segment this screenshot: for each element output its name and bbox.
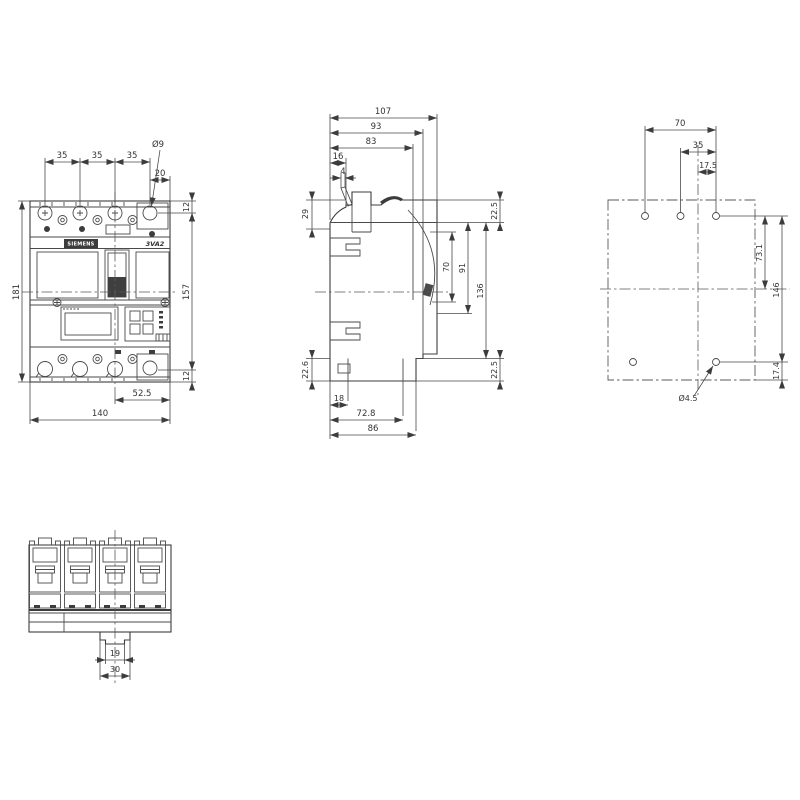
dome-cap [381, 198, 402, 203]
dim-bottom-left-226: 22.6 [301, 361, 310, 379]
drill-dia-leader [694, 366, 713, 396]
brand-label: SIEMENS [67, 242, 94, 248]
bottom-view-outline [29, 545, 171, 632]
lower-terminal-step [330, 322, 360, 340]
dim-depth-83: 83 [366, 137, 377, 147]
dim-trip-91: 91 [458, 263, 467, 273]
toggle-side [341, 187, 352, 206]
vent-slots-bottom [40, 378, 124, 381]
dim-pole-pitch-2: 35 [92, 151, 103, 161]
breaker-side-outline [330, 192, 437, 381]
dim-hole-bottom-offset: 12 [182, 371, 191, 381]
dim-bottom-right-225: 22.5 [490, 361, 499, 379]
cover-panel-right [136, 252, 169, 298]
bottom-terminal-screws [36, 350, 168, 380]
dim-depth-93: 93 [371, 122, 382, 132]
dim-height: 181 [12, 284, 22, 300]
dim-foot-728: 72.8 [357, 409, 376, 419]
cover-panel-left [37, 252, 98, 298]
toggle-handle [108, 277, 126, 297]
dim-toggle-4: 4 [340, 167, 345, 177]
top-terminal-screws [38, 203, 168, 237]
dim-drill-rows-146: 146 [772, 282, 781, 297]
trip-unit-dials [130, 311, 170, 341]
dim-tab-30: 30 [110, 665, 120, 674]
mounting-pad-bottom [137, 354, 168, 380]
dim-width: 140 [92, 409, 108, 419]
foot-lines [348, 359, 403, 382]
dim-top-right-225: 22.5 [490, 202, 499, 220]
dim-slot-19: 19 [110, 649, 120, 658]
side-view [315, 187, 448, 381]
dim-hole-top-offset: 12 [182, 202, 191, 212]
vent-slots-top [40, 202, 124, 206]
dim-top-29: 29 [301, 209, 310, 219]
dim-foot-86: 86 [368, 424, 379, 434]
side-view-dimensions: 107 93 83 16 4 29 70 91 136 22.5 22.5 [301, 107, 504, 439]
front-view-dimensions: 35 35 35 20 Ø9 12 157 12 181 52.5 140 [12, 139, 196, 424]
dim-drill-bottom-174: 17.4 [772, 362, 781, 380]
dim-drill-half-175: 17.5 [699, 161, 717, 170]
escutcheon-side [352, 205, 371, 232]
mounting-plate-outline [608, 200, 755, 380]
upper-terminal-step [330, 238, 360, 256]
mounting-hole-bottom [143, 361, 157, 375]
dim-mid-136: 136 [476, 283, 485, 298]
accessory-latch [423, 283, 434, 297]
dim-depth-total: 107 [375, 107, 391, 117]
dim-drill-pitch-35: 35 [693, 141, 704, 151]
drilling-dimensions: 70 35 17.5 73.1 146 17.4 Ø4.5 [645, 119, 788, 403]
dim-drill-span-70: 70 [675, 119, 686, 129]
dim-drill-row-731: 73.1 [755, 244, 764, 262]
dim-foot-18: 18 [334, 394, 344, 403]
mounting-hole-top [143, 206, 157, 220]
dim-hole-diameter: Ø9 [152, 139, 164, 150]
bottom-view: 19 30 [29, 530, 171, 686]
dim-pole-pitch-3: 35 [127, 151, 138, 161]
dimension-drawing-page: SIEMENS 3VA2 [0, 0, 800, 800]
drilling-pattern-view: 70 35 17.5 73.1 146 17.4 Ø4.5 [600, 119, 790, 403]
dim-front-16: 16 [333, 152, 344, 162]
dim-handle-to-edge: 52.5 [133, 389, 152, 399]
dim-pole-pitch-1: 35 [57, 151, 68, 161]
pole-modules [30, 538, 166, 608]
technical-drawing: SIEMENS 3VA2 [0, 0, 800, 800]
dim-window-70: 70 [442, 262, 451, 272]
front-view: SIEMENS 3VA2 [22, 192, 178, 398]
model-label: 3VA2 [146, 240, 165, 248]
dim-hole-span: 157 [182, 284, 192, 300]
